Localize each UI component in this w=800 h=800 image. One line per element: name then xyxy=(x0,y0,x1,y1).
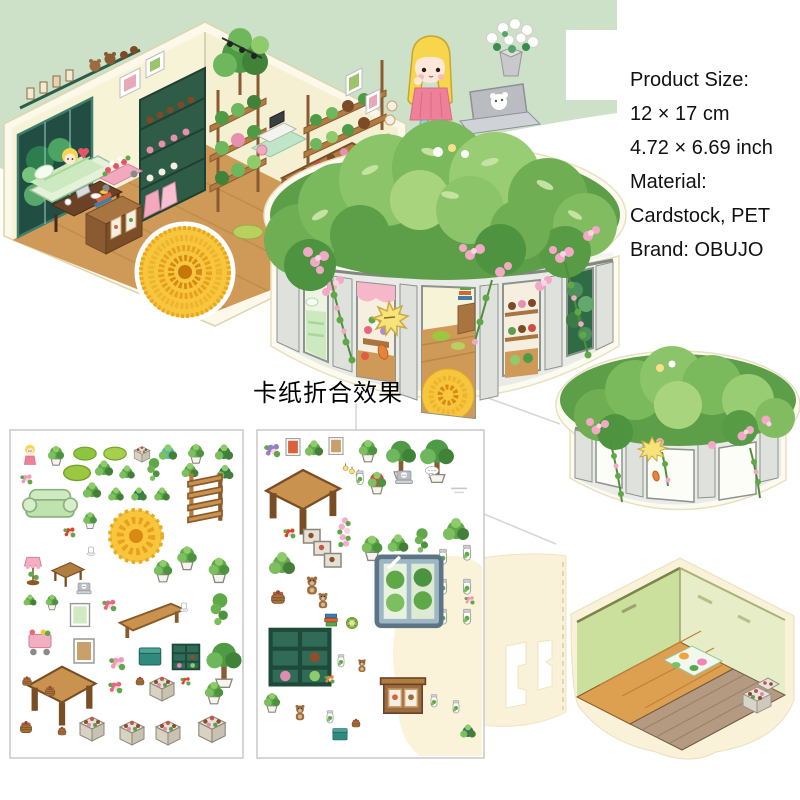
sticker-cabinet xyxy=(173,645,200,670)
sticker-jar xyxy=(431,695,437,708)
sticker-fridge xyxy=(377,557,441,626)
sticker-frame xyxy=(71,604,90,627)
chrysanthemum-rug xyxy=(137,224,233,320)
product-size-inch: 4.72 × 6.69 inch xyxy=(630,138,800,158)
folded-effect-caption: 卡纸折合效果 xyxy=(253,373,403,408)
sticker-drawer xyxy=(381,678,426,713)
sticker-jar xyxy=(357,471,364,485)
sticker-rug xyxy=(74,447,96,460)
sticker-books xyxy=(325,614,338,626)
material-label: Material: xyxy=(630,172,800,192)
product-collage: Product Size: 12 × 17 cm 4.72 × 6.69 inc… xyxy=(0,0,800,800)
sticker-frame xyxy=(329,438,343,455)
sticker-box xyxy=(333,729,347,740)
cylinder-exterior-illustration xyxy=(556,346,800,510)
empty-room-illustration xyxy=(571,558,794,759)
girl-with-laptop-illustration xyxy=(408,36,452,127)
product-info: Product Size: 12 × 17 cm 4.72 × 6.69 inc… xyxy=(630,70,800,260)
sticker-jar xyxy=(327,711,333,724)
sticker-jar xyxy=(453,701,459,714)
sticker-jar xyxy=(463,545,470,560)
sticker-box xyxy=(139,648,161,665)
sticker-sheet-left xyxy=(10,430,243,758)
sticker-jar xyxy=(463,579,470,594)
sticker-frame xyxy=(74,639,94,663)
sticker-rug xyxy=(64,465,91,480)
sticker-laptop xyxy=(77,583,91,594)
sticker-cabinet xyxy=(271,630,330,685)
sticker-laptop xyxy=(396,471,413,484)
sticker-mum xyxy=(110,510,163,563)
brand-value: Brand: OBUJO xyxy=(630,240,800,260)
sticker-frame xyxy=(286,439,300,456)
material-value: Cardstock, PET xyxy=(630,206,800,226)
sticker-sofa xyxy=(23,490,77,517)
sticker-jar xyxy=(463,609,470,624)
sticker-rug xyxy=(104,447,126,460)
product-size-cm: 12 × 17 cm xyxy=(630,104,800,124)
sticker-kiwi xyxy=(347,618,358,629)
product-size-label: Product Size: xyxy=(630,70,800,90)
sticker-sheet-right xyxy=(257,430,484,758)
sticker-jar xyxy=(338,655,344,668)
